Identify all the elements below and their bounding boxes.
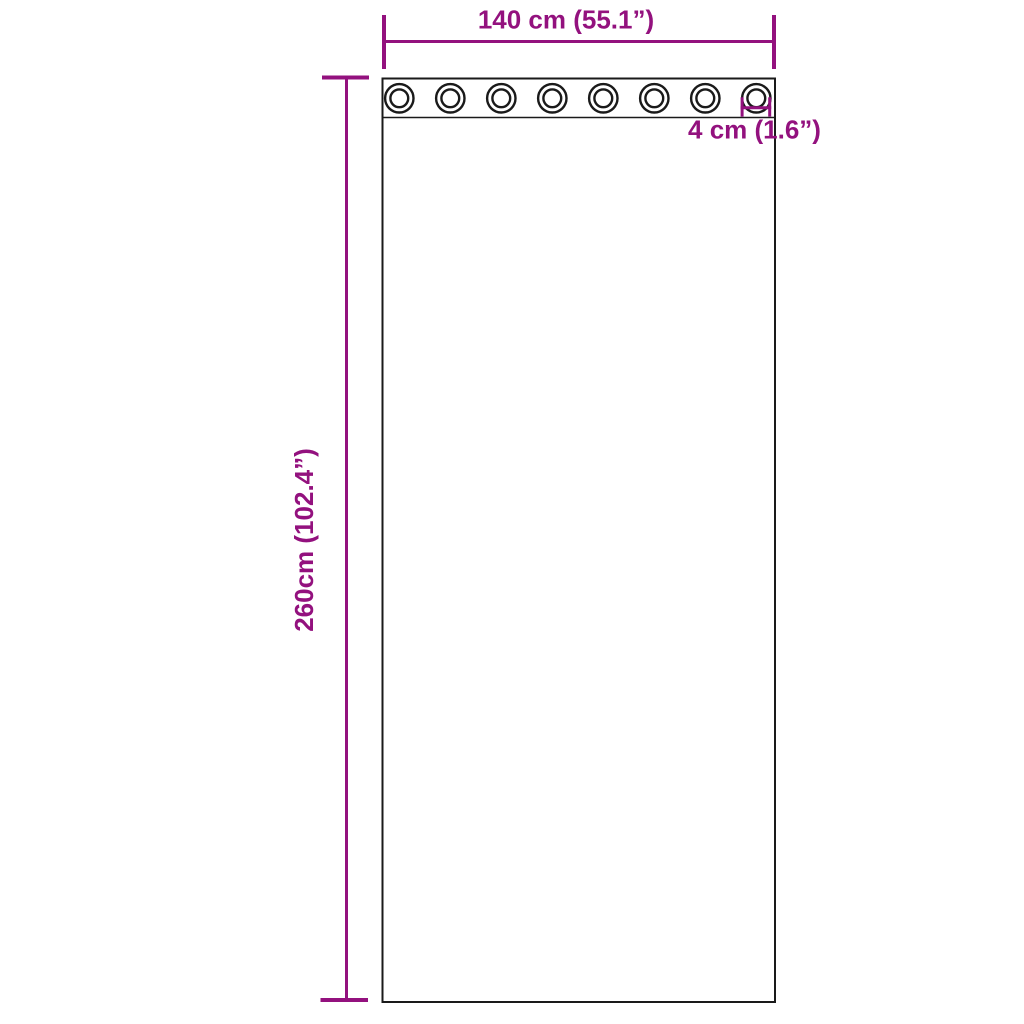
svg-text:4 cm (1.6”): 4 cm (1.6”) bbox=[688, 115, 821, 145]
svg-text:260cm (102.4”): 260cm (102.4”) bbox=[289, 448, 319, 632]
svg-text:140 cm (55.1”): 140 cm (55.1”) bbox=[478, 5, 654, 35]
